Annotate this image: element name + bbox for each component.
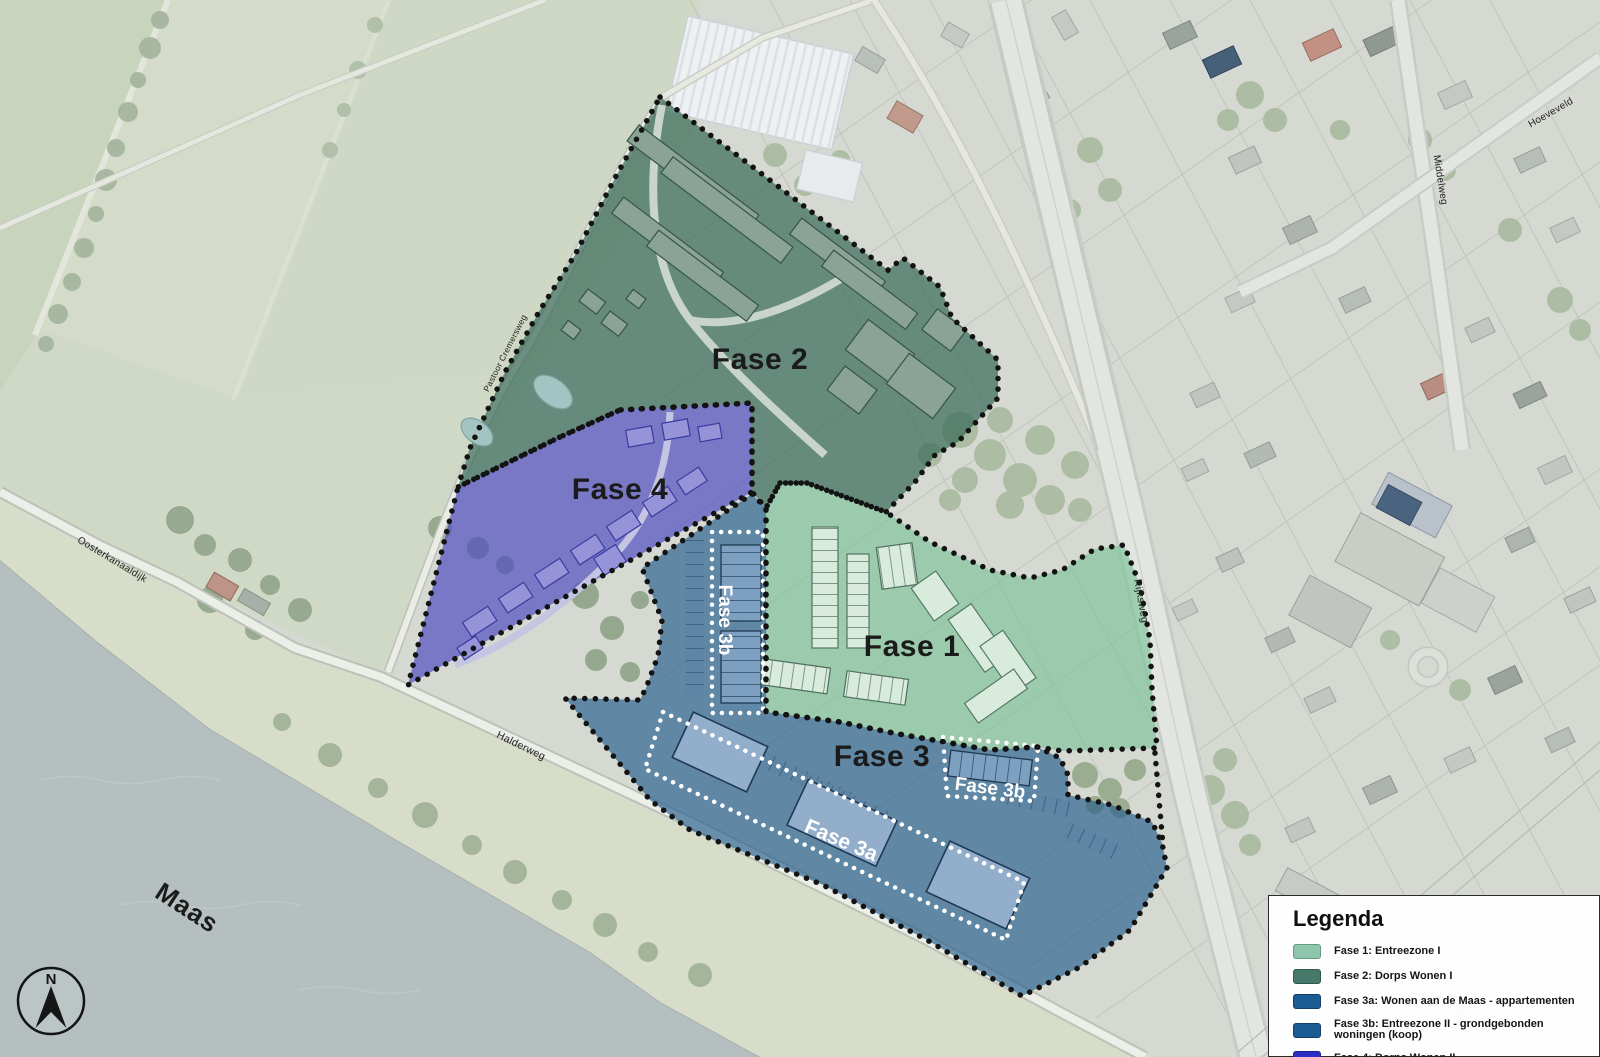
legend-item-3: Fase 3b: Entreezone II - grondgebonden w… [1293, 1019, 1589, 1041]
legend-item-4: Fase 4: Dorps Wonen II [1293, 1051, 1589, 1057]
legend-label-1: Fase 2: Dorps Wonen I [1334, 971, 1452, 982]
compass-north-label: N [46, 971, 57, 988]
legend-item-2: Fase 3a: Wonen aan de Maas - appartement… [1293, 994, 1589, 1009]
legend-panel: Legenda Fase 1: Entreezone IFase 2: Dorp… [1268, 895, 1600, 1057]
legend-label-0: Fase 1: Entreezone I [1334, 946, 1440, 957]
legend-swatch-3 [1293, 1023, 1321, 1038]
legend-swatch-1 [1293, 969, 1321, 984]
compass: N [18, 968, 84, 1034]
legend-label-3: Fase 3b: Entreezone II - grondgebonden w… [1334, 1019, 1589, 1041]
legend-swatch-4 [1293, 1051, 1321, 1057]
legend-label-2: Fase 3a: Wonen aan de Maas - appartement… [1334, 996, 1575, 1007]
legend-rows: Fase 1: Entreezone IFase 2: Dorps Wonen … [1293, 944, 1589, 1057]
legend-item-0: Fase 1: Entreezone I [1293, 944, 1589, 959]
legend-label-4: Fase 4: Dorps Wonen II [1334, 1053, 1455, 1057]
legend-swatch-2 [1293, 994, 1321, 1009]
legend-item-1: Fase 2: Dorps Wonen I [1293, 969, 1589, 984]
legend-swatch-0 [1293, 944, 1321, 959]
legend-title: Legenda [1293, 906, 1589, 932]
development-plan-map: N Fase 2 Fase 4 Fase 1 Fase 3 Fase 3a Fa… [0, 0, 1600, 1057]
